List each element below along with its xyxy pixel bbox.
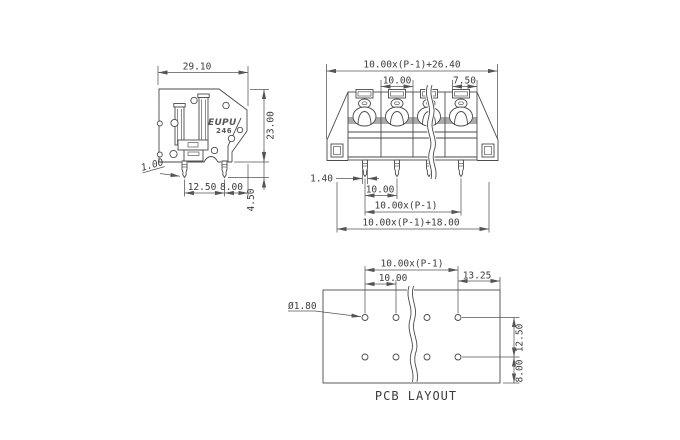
pcb-layout-view: 10.00x(P-1) 10.00 13.25 Ø1.80 12.50 8.00…	[288, 259, 526, 404]
side-view-pins	[182, 161, 227, 178]
dim-pole-pitch: 10.00	[383, 76, 412, 87]
dim-row-edge-offset: 8.00	[515, 359, 526, 382]
front-view: 10.00x(P-1)+26.40 10.00 7.50 1.40 10.00	[310, 60, 498, 233]
dim-pin-span: 10.00x(P-1)	[375, 201, 438, 212]
dim-side-height: 23.00	[266, 111, 277, 140]
logo-model: 246	[216, 127, 232, 135]
dim-side-width: 29.10	[183, 62, 212, 73]
pcb-layout-caption: PCB LAYOUT	[375, 389, 457, 403]
side-view-internals	[174, 94, 209, 161]
dim-edge-offset: 13.25	[463, 271, 492, 282]
pcb-dimensions: 10.00x(P-1) 10.00 13.25 Ø1.80 12.50 8.00	[288, 259, 526, 384]
dim-pin-width: 1.40	[310, 174, 333, 185]
dim-hole-span: 10.00x(P-1)	[381, 259, 444, 270]
dim-overall-width: 10.00x(P-1)+26.40	[363, 60, 461, 71]
front-view-body	[327, 92, 498, 161]
front-view-pins	[363, 160, 464, 177]
dim-pin-pitch: 10.00	[366, 185, 395, 196]
dim-lead-edge-offset: 8.00	[220, 182, 243, 193]
dim-end-segment: 7.50	[453, 76, 476, 87]
dim-hole-pitch: 10.00	[379, 273, 408, 284]
pcb-break-line	[408, 286, 418, 382]
dim-outer-span: 10.00x(P-1)+18.00	[362, 218, 460, 229]
technical-drawing-canvas: EUPU 246 29.10 23.00 4.50 1.00	[0, 0, 680, 440]
dim-lead-spacing: 12.50	[188, 182, 217, 193]
terminal-block-drawing: EUPU 246 29.10 23.00 4.50 1.00	[0, 0, 680, 440]
side-view: EUPU 246 29.10 23.00 4.50 1.00	[140, 62, 277, 212]
dim-hole-diameter: Ø1.80	[288, 301, 317, 312]
dim-lead-thickness: 1.00	[140, 157, 165, 174]
dim-row-spacing: 12.50	[515, 323, 526, 352]
